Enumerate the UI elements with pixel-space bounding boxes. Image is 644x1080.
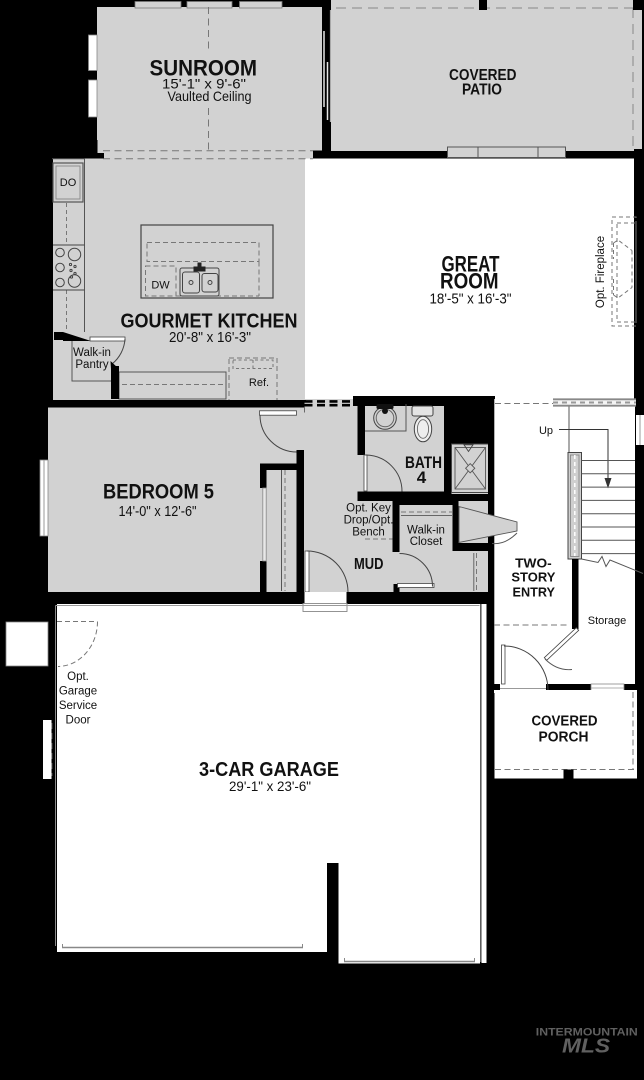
svg-text:Opt. Key: Opt. Key — [346, 503, 391, 515]
svg-text:Bench: Bench — [352, 527, 385, 539]
svg-text:Drop/Opt.: Drop/Opt. — [344, 515, 394, 527]
svg-text:Up: Up — [539, 425, 553, 437]
svg-text:29'-1" x 23'-6": 29'-1" x 23'-6" — [229, 778, 311, 794]
svg-text:COVERED: COVERED — [532, 714, 598, 730]
svg-text:14'-0" x 12'-6": 14'-0" x 12'-6" — [119, 504, 197, 520]
svg-text:18'-5" x 16'-3": 18'-5" x 16'-3" — [430, 291, 512, 308]
svg-text:Service: Service — [59, 700, 97, 712]
svg-text:20'-8" x 16'-3": 20'-8" x 16'-3" — [169, 330, 251, 346]
svg-text:PATIO: PATIO — [462, 82, 502, 99]
svg-text:Door: Door — [66, 715, 91, 727]
svg-text:Storage: Storage — [588, 615, 627, 627]
svg-text:PORCH: PORCH — [539, 730, 589, 746]
svg-text:Closet: Closet — [410, 536, 443, 548]
svg-text:Walk-in: Walk-in — [73, 347, 111, 359]
svg-text:Vaulted Ceiling: Vaulted Ceiling — [168, 88, 252, 104]
svg-text:MLS: MLS — [562, 1036, 611, 1058]
svg-text:ENTRY: ENTRY — [513, 584, 556, 599]
svg-text:Opt.: Opt. — [67, 671, 89, 683]
svg-text:Pantry: Pantry — [75, 359, 108, 371]
svg-text:Walk-in: Walk-in — [407, 525, 445, 537]
svg-text:TWO-: TWO- — [515, 556, 552, 571]
svg-text:Garage: Garage — [59, 686, 97, 698]
svg-text:STORY: STORY — [511, 570, 555, 585]
svg-text:DW: DW — [151, 280, 170, 292]
svg-text:DO: DO — [60, 177, 77, 189]
svg-text:Opt. Fireplace: Opt. Fireplace — [595, 236, 607, 308]
svg-text:4: 4 — [417, 468, 427, 487]
svg-text:Ref.: Ref. — [249, 377, 269, 389]
svg-text:MUD: MUD — [354, 556, 384, 573]
svg-text:BEDROOM 5: BEDROOM 5 — [103, 481, 214, 504]
